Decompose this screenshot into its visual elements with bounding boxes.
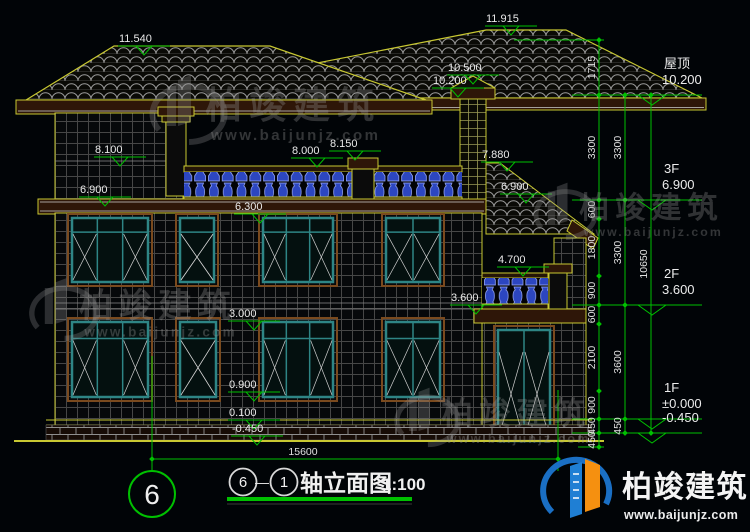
balcony-column	[549, 273, 567, 310]
elevation-value: 8.000	[292, 145, 320, 157]
elevation-value: 6.900	[80, 184, 108, 196]
balcony-slab	[474, 309, 586, 323]
elevation-value: 0.900	[229, 379, 257, 391]
balcony-balustrade	[482, 278, 548, 304]
dimension-label: 10650	[638, 249, 650, 278]
window	[68, 214, 152, 286]
elevation-value: 11.915	[486, 13, 519, 25]
title-separator: —	[255, 474, 269, 490]
floor-elevation: ±0.000	[662, 396, 702, 411]
drawing-title: 6 — 1 轴立面图 1:100	[227, 469, 425, 505]
logo-brand: 柏竣建筑	[622, 470, 748, 504]
elevation-value: 6.300	[235, 201, 263, 213]
window	[259, 214, 337, 286]
title-underline	[227, 497, 412, 501]
elevation-value: 6.900	[501, 181, 529, 193]
elevation-value: 10.500	[448, 62, 482, 74]
cad-elevation-drawing: 柏竣建筑 www.baijunjz.com	[0, 0, 750, 532]
floor-elevation: -0.450	[662, 410, 699, 425]
title-text: 轴立面图	[300, 470, 392, 496]
dimension-tick	[622, 302, 628, 308]
dimension-label: 1715	[586, 56, 598, 80]
elevation-value: 4.700	[498, 254, 526, 266]
dimension-label: 900	[586, 282, 598, 300]
dimension-chain: 10650	[638, 92, 654, 436]
balcony-rail	[482, 273, 548, 278]
column	[166, 122, 186, 196]
floor-name: 1F	[664, 380, 679, 395]
floor-elevation: 3.600	[662, 282, 695, 297]
elevation-value: 7.880	[482, 149, 510, 161]
dimension-label: 450	[612, 417, 624, 435]
dimension-label: 3300	[612, 136, 624, 160]
elevation-value: 10.200	[433, 75, 467, 87]
axis-bubble-label: 6	[144, 479, 160, 510]
elevation-value: 11.540	[119, 33, 152, 45]
floor-name: 屋顶	[664, 56, 690, 71]
elevation-triangle-icon	[638, 305, 666, 315]
chimney-cap	[451, 88, 495, 99]
elevation-value: -0.450	[232, 423, 263, 435]
dimension-tick	[596, 273, 602, 279]
logo-url: www.baijunjz.com	[623, 508, 738, 522]
window	[259, 318, 337, 401]
dimension-label: 3300	[612, 241, 624, 265]
balustrade-rail	[184, 166, 462, 172]
pilaster	[348, 158, 378, 169]
logo-building-icon	[585, 459, 600, 512]
window	[382, 214, 444, 286]
dimension-tick	[648, 430, 654, 436]
floor-elevation: 10.200	[662, 72, 702, 87]
brand-logo: 柏竣建筑 www.baijunjz.com	[543, 459, 748, 522]
axis-bubble: 6	[129, 471, 175, 517]
title-axis-from: 6	[239, 474, 247, 491]
dimension-label: 3300	[586, 136, 598, 160]
dimension-label: 1800	[586, 236, 598, 260]
dimension-tick	[596, 388, 602, 394]
dimension-chain: 330033003600450	[612, 92, 628, 436]
title-axis-to: 1	[280, 474, 288, 491]
window	[382, 318, 444, 401]
dimension-label: 2100	[586, 346, 598, 370]
elevation-value: 8.100	[95, 144, 123, 156]
elevation-value: 3.600	[451, 292, 479, 304]
title-scale: 1:100	[382, 475, 425, 494]
window	[176, 214, 218, 286]
dimension-label: 600	[586, 306, 598, 324]
balustrade	[184, 172, 462, 197]
floor-elevation: 6.900	[662, 177, 695, 192]
dimension-label: 15600	[288, 446, 317, 458]
elevation-value: 0.100	[229, 407, 257, 419]
floor-name: 2F	[664, 266, 679, 281]
floor-name: 3F	[664, 161, 679, 176]
dimension-tick	[596, 37, 602, 43]
balcony-column-capital	[544, 264, 572, 273]
dimension-label: 3600	[612, 350, 624, 374]
